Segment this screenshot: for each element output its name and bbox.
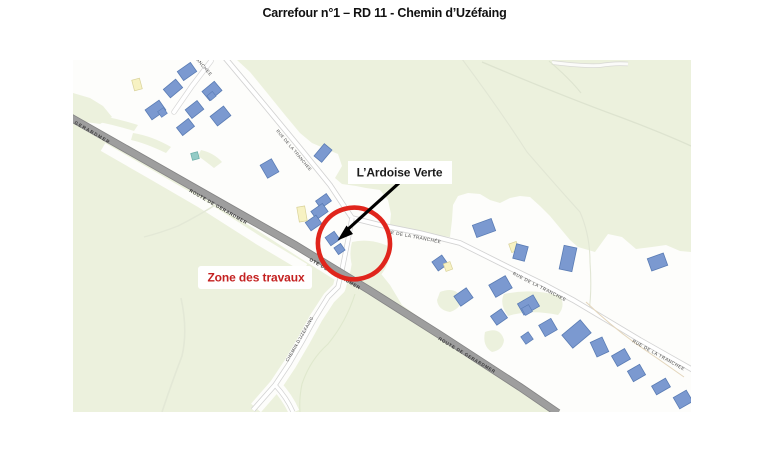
svg-text:Zone des travaux: Zone des travaux [207,271,305,285]
svg-text:L’Ardoise Verte: L’Ardoise Verte [357,166,443,180]
